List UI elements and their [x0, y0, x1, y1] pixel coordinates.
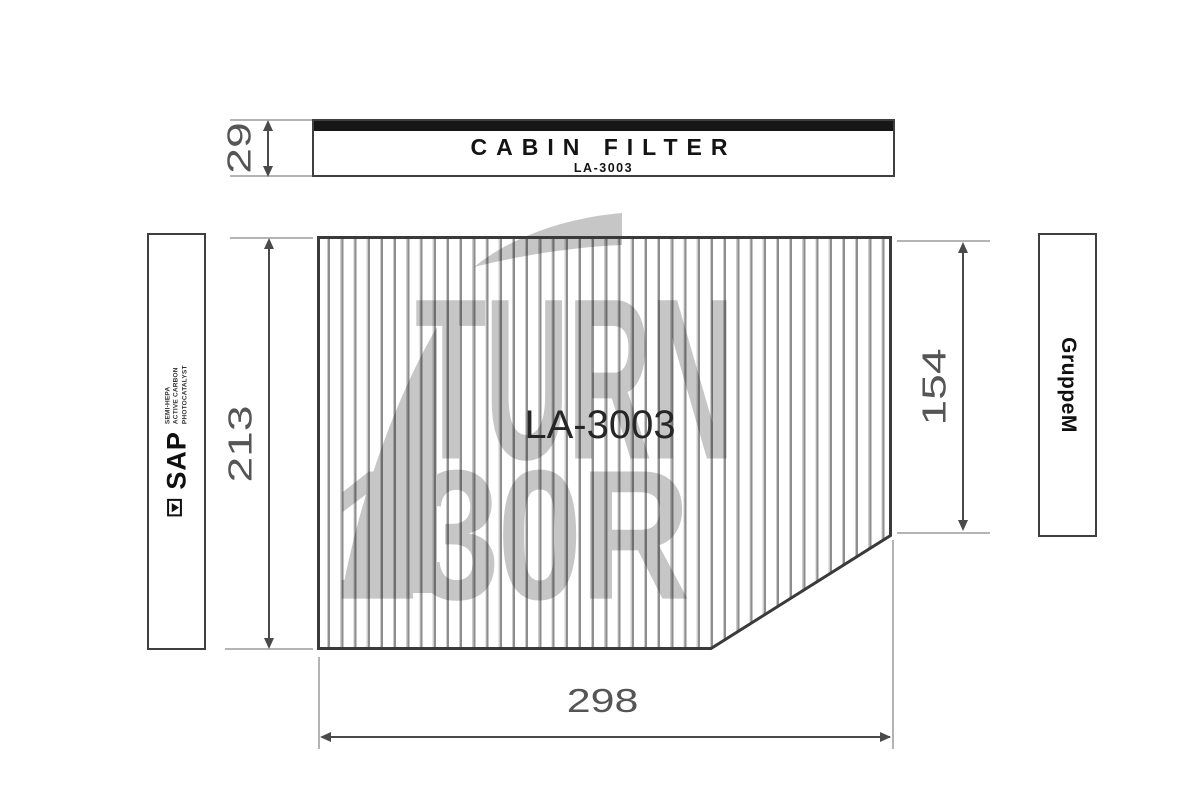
- dim-label-213: 213: [219, 394, 263, 494]
- dim-label-29: 29: [218, 118, 260, 178]
- dimension-line: [268, 241, 270, 647]
- arrowhead-up-icon: [264, 238, 274, 249]
- sap-brand-text: SAP: [161, 431, 192, 490]
- extension-line: [892, 540, 894, 749]
- gruppem-label-box: GruppeM: [1038, 233, 1097, 537]
- arrowhead-right-icon: [880, 732, 891, 742]
- arrowhead-left-icon: [320, 732, 331, 742]
- dim-label-298: 298: [520, 678, 685, 724]
- sap-label-content: SAP SEMI-HEPA ACTIVE CARBON PHOTOCATALYS…: [161, 365, 192, 518]
- header-title: CABIN FILTER: [314, 134, 893, 161]
- arrowhead-up-icon: [263, 120, 273, 131]
- package-header-box: CABIN FILTER LA-3003: [312, 119, 895, 177]
- dim-label-154: 154: [913, 337, 957, 437]
- sap-label-box: SAP SEMI-HEPA ACTIVE CARBON PHOTOCATALYS…: [147, 233, 206, 650]
- filter-part-code: LA-3003: [450, 403, 750, 448]
- arrowhead-up-icon: [958, 242, 968, 253]
- extension-line: [897, 240, 990, 242]
- dimension-line: [323, 736, 890, 738]
- header-part-number: LA-3003: [314, 161, 893, 175]
- funnel-icon: [163, 496, 190, 518]
- dimension-line: [962, 245, 964, 529]
- cabin-filter-drawing: CABIN FILTER LA-3003 29 SAP SEMI-HEPA AC…: [0, 0, 1200, 800]
- extension-line: [897, 532, 990, 534]
- sap-feature-2: ACTIVE CARBON: [172, 365, 180, 424]
- sap-feature-lines: SEMI-HEPA ACTIVE CARBON PHOTOCATALYST: [164, 365, 189, 424]
- arrowhead-down-icon: [264, 638, 274, 649]
- gruppem-brand-text: GruppeM: [1056, 337, 1080, 433]
- arrowhead-down-icon: [263, 166, 273, 177]
- sap-feature-3: PHOTOCATALYST: [181, 365, 189, 424]
- header-black-bar: [314, 121, 893, 131]
- sap-feature-1: SEMI-HEPA: [164, 365, 172, 424]
- arrowhead-down-icon: [958, 520, 968, 531]
